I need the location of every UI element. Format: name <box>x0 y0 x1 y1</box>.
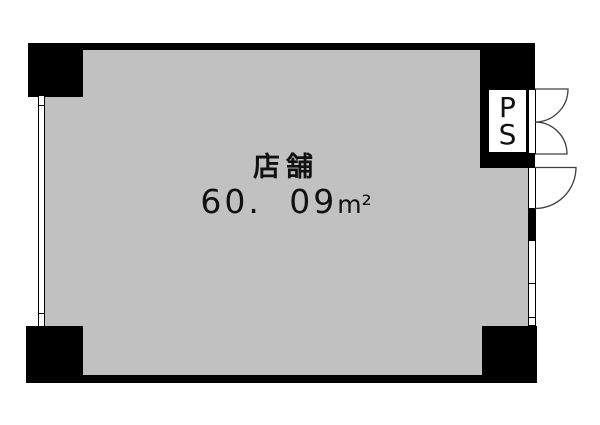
window-tick <box>529 283 535 284</box>
area-unit: m² <box>337 190 371 219</box>
ps-shaft: P S <box>487 88 528 154</box>
wall-top <box>28 43 535 50</box>
ps-label-line1: P <box>499 94 516 121</box>
ps-label-line2: S <box>499 121 517 148</box>
floor-plan-canvas: P S 店舗 60. 09m² <box>0 0 600 425</box>
window-tick <box>39 105 44 106</box>
window-tick <box>529 317 535 318</box>
ps-double-door-icon <box>535 89 568 154</box>
ps-door-jamb <box>528 89 536 154</box>
window-tick <box>39 313 44 314</box>
room-area-label: 60. 09m² <box>40 185 532 218</box>
entrance-door-icon <box>535 168 576 209</box>
area-value: 60. 09 <box>200 182 337 221</box>
room-name-label: 店舗 <box>40 153 532 183</box>
room-label-group: 店舗 60. 09m² <box>40 153 532 218</box>
pillar-bottom-left <box>26 326 83 383</box>
window-right <box>528 240 536 326</box>
wall-bottom <box>26 375 537 383</box>
pillar-bottom-right <box>482 326 537 383</box>
pillar-top-left <box>28 43 83 97</box>
